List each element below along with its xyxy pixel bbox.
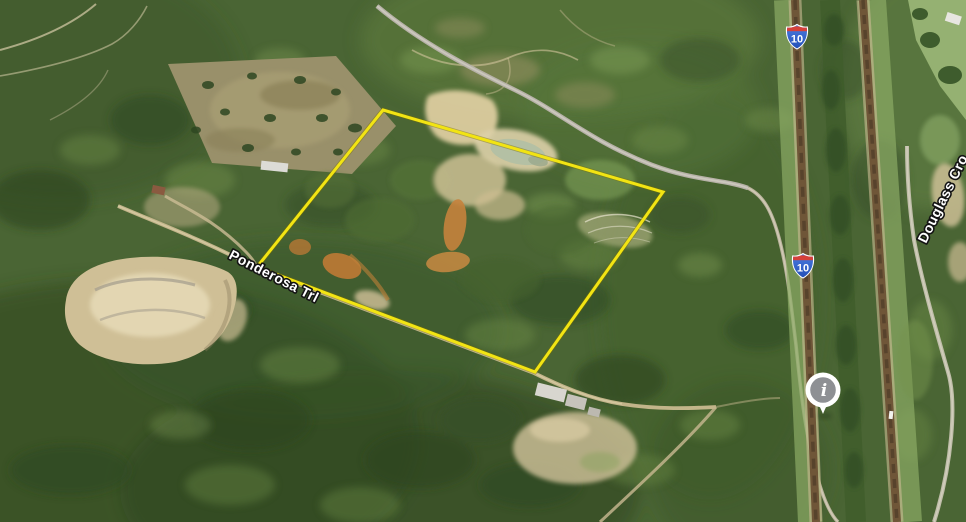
vehicle xyxy=(889,411,894,419)
info-icon: i xyxy=(821,381,827,401)
shield-number: 10 xyxy=(791,34,803,46)
map-canvas[interactable]: Ponderosa Trl Douglass Cro 10 10 i xyxy=(0,0,966,522)
shield-number: 10 xyxy=(797,263,809,275)
